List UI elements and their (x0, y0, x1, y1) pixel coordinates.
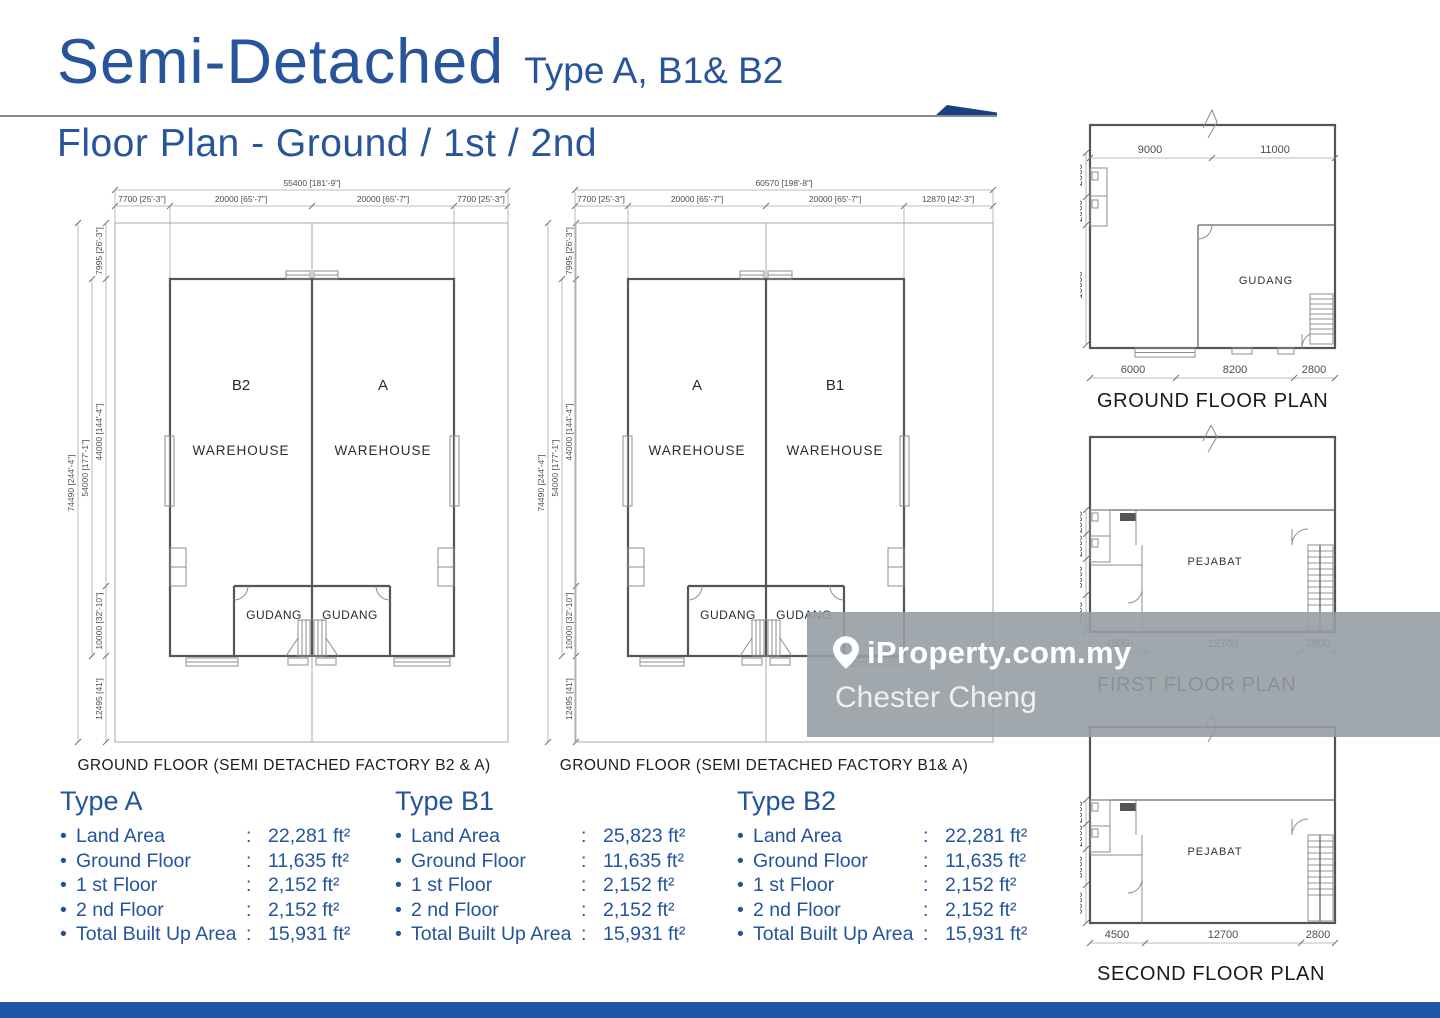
spec-row: • Land Area : 22,281 ft² (60, 824, 350, 849)
watermark-brand-row: iProperty.com.my (833, 635, 1440, 671)
dim-top-seg: 20000 [65'-7"] (671, 194, 723, 204)
dim-left-seg: 3000 (1080, 891, 1085, 914)
spec-row: • 2 nd Floor : 2,152 ft² (737, 898, 1027, 923)
second-floor-plan-drawing: 2000 2000 3000 3000 4500 12700 2800 PEJA… (1080, 715, 1430, 960)
spec-row: • Ground Floor : 11,635 ft² (737, 849, 1027, 874)
spec-column-type-b2: Type B2 • Land Area : 22,281 ft² • Groun… (737, 786, 1027, 947)
watermark-brand: iProperty.com.my (867, 635, 1131, 671)
dim-top-seg: 20000 [65'-7"] (809, 194, 861, 204)
spec-title: Type A (60, 786, 350, 817)
page-title-main: Semi-Detached (57, 26, 504, 98)
unit-label: B1 (826, 377, 844, 394)
dim-left-seg: 10050 (1080, 271, 1085, 299)
spec-title: Type B1 (395, 786, 685, 817)
dim-left-seg: 44000 [144'-4"] (94, 403, 104, 460)
footer-bar (0, 1002, 1440, 1018)
spec-column-type-a: Type A • Land Area : 22,281 ft² • Ground… (60, 786, 350, 947)
swoosh-icon (936, 105, 997, 115)
spec-column-type-b1: Type B1 • Land Area : 25,823 ft² • Groun… (395, 786, 685, 947)
spec-row: • Total Built Up Area : 15,931 ft² (60, 922, 350, 947)
room-label: PEJABAT (1187, 846, 1242, 858)
dim-left-seg: 12495 [41'] (94, 678, 104, 720)
unit-label: B2 (232, 377, 250, 394)
bullet-icon: • (60, 849, 76, 874)
dim-total-width: 60570 [198'-8"] (755, 178, 812, 188)
spec-row: • Ground Floor : 11,635 ft² (60, 849, 350, 874)
bullet-icon: • (60, 873, 76, 898)
spec-row: • 1 st Floor : 2,152 ft² (737, 873, 1027, 898)
spec-row: • 2 nd Floor : 2,152 ft² (395, 898, 685, 923)
dim-top-seg: 11000 (1260, 144, 1290, 156)
dim-left-mid: 54000 [177'-1"] (80, 439, 90, 496)
dim-bottom-seg: 2800 (1302, 364, 1326, 376)
dim-bottom-seg: 6000 (1121, 364, 1145, 376)
header-rule (0, 100, 1000, 124)
spec-row: • Ground Floor : 11,635 ft² (395, 849, 685, 874)
dim-bottom-seg: 4500 (1105, 929, 1129, 941)
bullet-icon: • (395, 849, 411, 874)
bullet-icon: • (60, 824, 76, 849)
bullet-icon: • (737, 898, 753, 923)
unit-label: A (378, 377, 388, 394)
floor-plan-b2a-drawing: 55400 [181'-9"] 7700 [25'-3"] 20000 [65'… (58, 168, 510, 768)
dim-left-seg: 10000 [32'-10"] (564, 592, 574, 649)
room-label: PEJABAT (1187, 556, 1242, 568)
page-title-suffix: Type A, B1& B2 (524, 50, 783, 92)
plan-caption-second: SECOND FLOOR PLAN (1097, 963, 1325, 986)
dim-left-seg: 2000 (1080, 824, 1085, 847)
dim-left-outer: 74490 [244'-4"] (66, 454, 76, 511)
bullet-icon: • (395, 898, 411, 923)
dim-left-seg: 2000 (1080, 800, 1085, 823)
spec-row: • 1 st Floor : 2,152 ft² (60, 873, 350, 898)
bullet-icon: • (737, 873, 753, 898)
room-label: WAREHOUSE (334, 443, 431, 458)
spec-row: • 2 nd Floor : 2,152 ft² (60, 898, 350, 923)
bullet-icon: • (60, 898, 76, 923)
dim-left-seg: 7995 [26'-3"] (564, 227, 574, 275)
location-pin-icon (833, 636, 859, 669)
dim-bottom-seg: 8200 (1223, 364, 1247, 376)
dim-left-seg: 12495 [41'] (564, 678, 574, 720)
bullet-icon: • (395, 873, 411, 898)
dim-left-seg: 3000 (1080, 855, 1085, 878)
dim-left-mid: 54000 [177'-1"] (550, 439, 560, 496)
dim-top-seg: 9000 (1138, 144, 1162, 156)
room-label: WAREHOUSE (648, 443, 745, 458)
dim-left-seg: 10000 [32'-10"] (94, 592, 104, 649)
dim-total-width: 55400 [181'-9"] (283, 178, 340, 188)
bullet-icon: • (737, 922, 753, 947)
plan-caption-ground: GROUND FLOOR PLAN (1097, 390, 1328, 413)
room-label: GUDANG (1239, 275, 1293, 287)
dim-bottom-seg: 12700 (1208, 929, 1239, 941)
dim-left-seg: 2000 (1080, 534, 1085, 557)
room-label: WAREHOUSE (786, 443, 883, 458)
page-subtitle: Floor Plan - Ground / 1st / 2nd (57, 122, 597, 166)
spec-row: • Total Built Up Area : 15,931 ft² (737, 922, 1027, 947)
bullet-icon: • (395, 922, 411, 947)
dim-top-seg: 7700 [25'-3"] (457, 194, 505, 204)
dim-left-outer: 74490 [244'-4"] (536, 454, 546, 511)
plan-caption-b1a: GROUND FLOOR (SEMI DETACHED FACTORY B1& … (528, 757, 1000, 775)
watermark-agent-name: Chester Cheng (835, 681, 1440, 715)
room-label: WAREHOUSE (192, 443, 289, 458)
bullet-icon: • (395, 824, 411, 849)
bullet-icon: • (737, 824, 753, 849)
room-label: GUDANG (322, 608, 378, 622)
bullet-icon: • (60, 922, 76, 947)
dim-top-seg: 7700 [25'-3"] (118, 194, 166, 204)
spec-row: • Total Built Up Area : 15,931 ft² (395, 922, 685, 947)
dim-left-seg: 7995 [26'-3"] (94, 227, 104, 275)
ground-floor-plan-drawing: 9000 11000 2600 2000 10050 6000 8200 280… (1080, 108, 1430, 408)
dim-left-seg: 2000 (1080, 510, 1085, 533)
room-label: GUDANG (246, 608, 302, 622)
dim-left-seg: 3000 (1080, 565, 1085, 588)
dim-bottom-seg: 2800 (1306, 929, 1330, 941)
dim-left-seg: 2000 (1080, 199, 1085, 222)
dim-top-seg: 20000 [65'-7"] (357, 194, 409, 204)
dim-left-seg: 44000 [144'-4"] (564, 403, 574, 460)
dim-top-seg: 20000 [65'-7"] (215, 194, 267, 204)
room-label: GUDANG (700, 608, 756, 622)
plan-caption-b2a: GROUND FLOOR (SEMI DETACHED FACTORY B2 &… (58, 757, 510, 775)
spec-row: • 1 st Floor : 2,152 ft² (395, 873, 685, 898)
watermark-band: iProperty.com.my Chester Cheng (807, 612, 1440, 737)
dim-left-seg: 2600 (1080, 163, 1085, 186)
page-title: Semi-Detached Type A, B1& B2 (57, 26, 783, 98)
spec-title: Type B2 (737, 786, 1027, 817)
spec-row: • Land Area : 25,823 ft² (395, 824, 685, 849)
dim-top-seg: 7700 [25'-3"] (577, 194, 625, 204)
bullet-icon: • (737, 849, 753, 874)
unit-label: A (692, 377, 702, 394)
dim-top-seg: 12870 [42'-3"] (922, 194, 974, 204)
spec-row: • Land Area : 22,281 ft² (737, 824, 1027, 849)
